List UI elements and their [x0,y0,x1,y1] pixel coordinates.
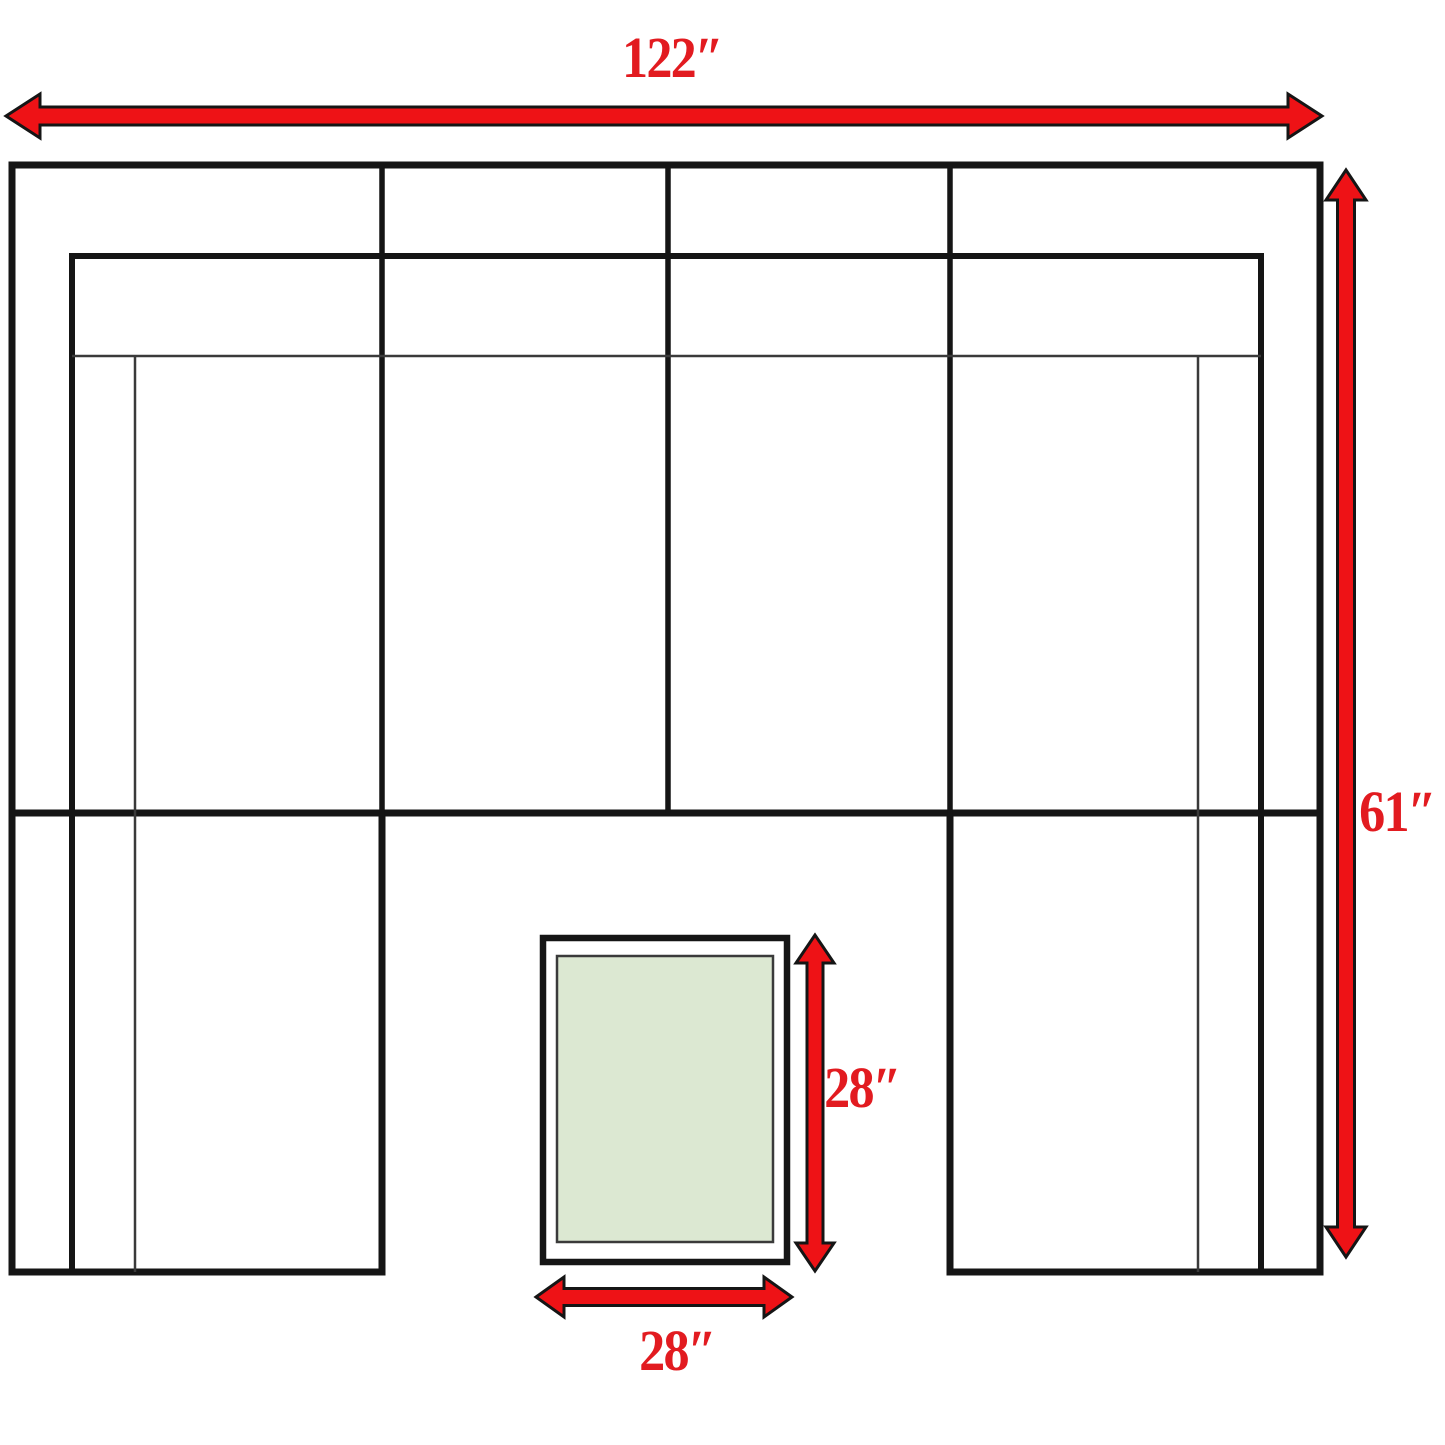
overall-depth-label: 61″ [1359,783,1435,841]
ottoman-width-arrow [536,1277,792,1317]
overall-width-label: 122″ [622,29,722,87]
sectional-dimension-diagram: 122″ 61″ 28″ 28″ [0,0,1445,1445]
ottoman [543,938,787,1262]
diagram-drawing [0,0,1445,1445]
sofa-right-column-outline [950,813,1320,1272]
overall-width-arrow [6,94,1322,138]
ottoman-depth-label: 28″ [824,1059,900,1117]
ottoman-width-label: 28″ [639,1322,715,1380]
ottoman-cushion [557,956,773,1242]
overall-depth-arrow [1326,170,1366,1257]
sofa-left-column-outline [12,813,382,1272]
